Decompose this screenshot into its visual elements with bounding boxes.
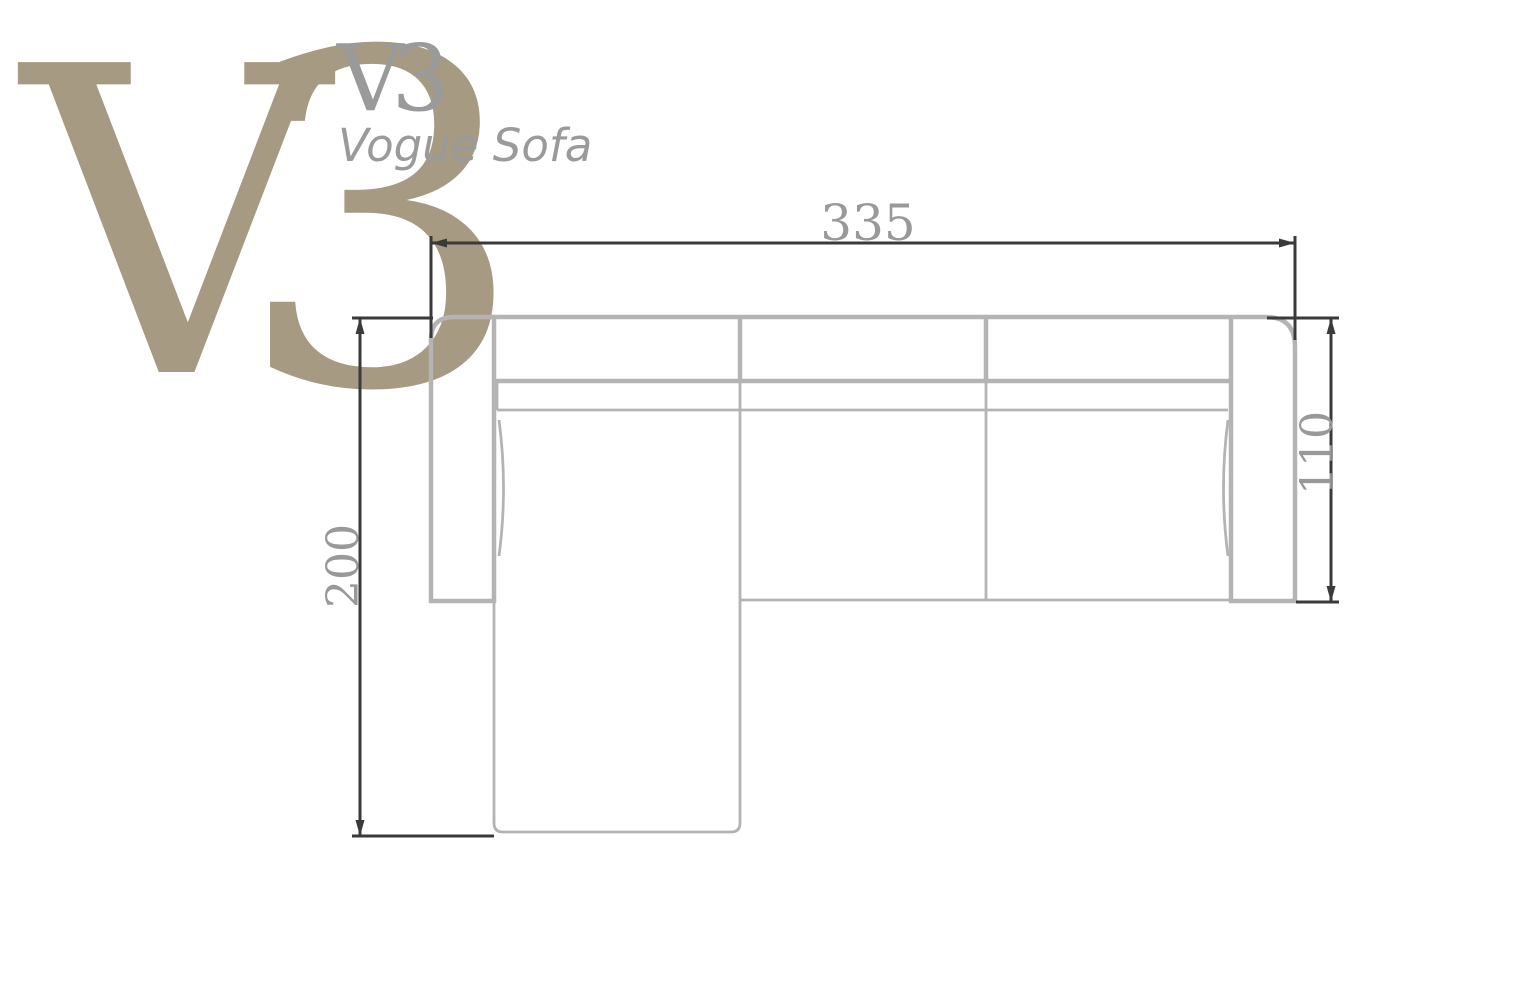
arrow-width-right: [1279, 239, 1295, 248]
arrow-depth-top: [1327, 318, 1336, 334]
dim-depth-value: 110: [1292, 411, 1343, 495]
right-armrest-cushion-arc: [1224, 420, 1229, 556]
arrow-chaise-bottom: [356, 820, 365, 836]
logo-product-name: Vogue Sofa: [338, 119, 592, 172]
sofa-thick-lines: [429, 317, 1297, 603]
sofa-dimension-drawing: V 3 V3 Vogue Sofa: [0, 0, 1515, 989]
logo-group: V 3 V3 Vogue Sofa: [15, 0, 592, 492]
logo-small-mark: V3: [336, 25, 443, 132]
arrow-depth-bottom: [1327, 586, 1336, 602]
dim-width-value: 335: [820, 194, 915, 252]
sofa-outline-group: [429, 317, 1297, 832]
chaise-outline: [494, 383, 740, 832]
dim-chaise-value: 200: [318, 524, 369, 608]
sofa-thin-lines: [494, 383, 1229, 832]
sofa-body-outline: [431, 317, 1295, 603]
